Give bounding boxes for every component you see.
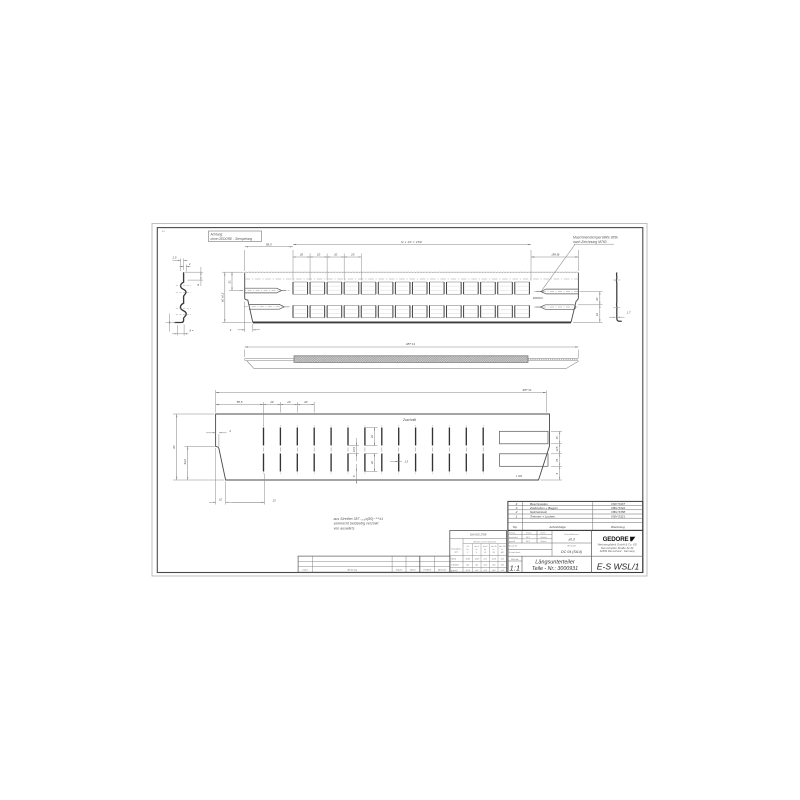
svg-text:±0,2: ±0,2 bbox=[475, 570, 478, 572]
svg-text:Werkzeug: Werkzeug bbox=[611, 525, 625, 529]
svg-text:58,5: 58,5 bbox=[237, 400, 243, 404]
svg-text:DIN ISO 2768: DIN ISO 2768 bbox=[470, 533, 487, 537]
svg-text:Name: Name bbox=[541, 533, 546, 535]
svg-text:Name: Name bbox=[410, 570, 417, 572]
svg-text:20: 20 bbox=[370, 435, 374, 439]
svg-text:43,6: 43,6 bbox=[183, 459, 187, 465]
svg-text:Datum: Datum bbox=[396, 569, 403, 572]
svg-text:2,5: 2,5 bbox=[172, 256, 177, 260]
svg-text:von auswärts: von auswärts bbox=[334, 526, 355, 530]
svg-text:Änderung: Änderung bbox=[346, 569, 357, 572]
svg-text:58,5: 58,5 bbox=[266, 242, 272, 246]
svg-text:1: 1 bbox=[516, 514, 518, 518]
svg-text:Zuschnitt: Zuschnitt bbox=[402, 418, 416, 422]
svg-text:Ersetzt durch:: Ersetzt durch: bbox=[509, 551, 521, 554]
svg-text:über 6: über 6 bbox=[483, 546, 488, 548]
svg-text:bis: bis bbox=[476, 549, 478, 551]
svg-text:20: 20 bbox=[350, 252, 355, 256]
svg-text:12,5: 12,5 bbox=[556, 446, 559, 451]
svg-text:über 30: über 30 bbox=[491, 546, 497, 548]
svg-text:grad: grad bbox=[455, 552, 458, 554]
svg-text:Prüffeld: Prüffeld bbox=[423, 570, 431, 572]
svg-text:30: 30 bbox=[484, 552, 486, 554]
svg-text:Trennen + Lochen: Trennen + Lochen bbox=[530, 514, 555, 518]
svg-text:20: 20 bbox=[269, 400, 274, 404]
svg-text:10,5: 10,5 bbox=[353, 446, 356, 451]
svg-text:1:1: 1:1 bbox=[510, 564, 521, 573]
svg-text:±0,8: ±0,8 bbox=[492, 570, 495, 572]
svg-text:60 ±0,5: 60 ±0,5 bbox=[220, 292, 224, 302]
svg-text:3000931: 3000931 bbox=[533, 296, 544, 300]
svg-text:±0,2: ±0,2 bbox=[501, 559, 504, 561]
svg-text:Index: Index bbox=[303, 570, 309, 572]
svg-text:±0,1: ±0,1 bbox=[475, 565, 478, 567]
svg-text:über 3: über 3 bbox=[474, 546, 479, 548]
svg-text:N x 20 = 280: N x 20 = 280 bbox=[401, 240, 422, 244]
svg-text:senkrecht beidseitig verzinkt: senkrecht beidseitig verzinkt bbox=[334, 522, 380, 526]
svg-text:31: 31 bbox=[228, 280, 232, 284]
svg-text:Arbeitsfolge: Arbeitsfolge bbox=[548, 525, 566, 529]
svg-text:42899 Remscheid · Germany: 42899 Remscheid · Germany bbox=[600, 550, 636, 553]
svg-text:±0,1: ±0,1 bbox=[466, 565, 469, 567]
svg-text:3: 3 bbox=[467, 552, 468, 554]
svg-text:20: 20 bbox=[303, 400, 308, 404]
svg-text:0,5: 0,5 bbox=[467, 546, 469, 548]
svg-text:m (mittel): m (mittel) bbox=[451, 564, 459, 567]
svg-text:1,7: 1,7 bbox=[627, 311, 631, 315]
svg-text:20: 20 bbox=[316, 252, 321, 256]
svg-text:Datum: Datum bbox=[526, 532, 532, 535]
svg-text:20: 20 bbox=[333, 252, 338, 256]
svg-text:Maßstab: Maßstab bbox=[511, 558, 518, 561]
svg-text:nach Zeichnung M760: nach Zeichnung M760 bbox=[573, 240, 607, 244]
svg-text:Abmaße in mm für Nennmaße: Abmaße in mm für Nennmaße bbox=[473, 540, 497, 543]
svg-text:±0,2: ±0,2 bbox=[484, 565, 487, 567]
svg-text:GEDORE: GEDORE bbox=[603, 536, 629, 543]
svg-text:1 464: 1 464 bbox=[516, 475, 523, 478]
svg-text:±0,05: ±0,05 bbox=[475, 559, 479, 561]
svg-text:g (grob): g (grob) bbox=[451, 570, 458, 572]
svg-text:±0,15: ±0,15 bbox=[492, 559, 496, 561]
svg-text:20: 20 bbox=[299, 252, 304, 256]
svg-text:(58,9): (58,9) bbox=[552, 252, 560, 256]
svg-text:25.2.: 25.2. bbox=[525, 541, 531, 543]
svg-text:Maschinenstempel BMS 365k: Maschinenstempel BMS 365k bbox=[573, 235, 618, 239]
svg-text:20: 20 bbox=[370, 461, 374, 465]
svg-text:Längsunterteiler: Längsunterteiler bbox=[535, 559, 576, 565]
svg-text:1,5: 1,5 bbox=[405, 460, 409, 464]
svg-text:Op.: Op. bbox=[513, 525, 518, 529]
svg-text:bis: bis bbox=[501, 549, 503, 551]
svg-text:120: 120 bbox=[492, 552, 495, 554]
svg-text:±0,3: ±0,3 bbox=[492, 565, 495, 567]
svg-text:aus Streifen 387₋₀,₅x(80)⁺⁰·⁵x: aus Streifen 387₋₀,₅x(80)⁺⁰·⁵x1 bbox=[334, 517, 384, 521]
svg-text:f (fein): f (fein) bbox=[451, 559, 456, 561]
svg-text:bearbeitet: bearbeitet bbox=[509, 536, 518, 539]
svg-text:80: 80 bbox=[172, 445, 176, 449]
svg-text:Ersatz für:: Ersatz für: bbox=[509, 545, 518, 548]
svg-text:ohne GEDORE - Stempelung: ohne GEDORE - Stempelung bbox=[211, 237, 253, 241]
svg-text:387 ±1: 387 ±1 bbox=[522, 388, 531, 392]
svg-text:VSH 5321: VSH 5321 bbox=[611, 514, 625, 518]
svg-text:bis: bis bbox=[493, 549, 495, 551]
svg-text:Gruber: Gruber bbox=[541, 541, 547, 543]
svg-text:6: 6 bbox=[476, 552, 477, 554]
svg-text:±0,5: ±0,5 bbox=[484, 570, 487, 572]
svg-text:20: 20 bbox=[595, 297, 599, 302]
svg-text:±0,05: ±0,05 bbox=[466, 559, 470, 561]
svg-text:±1,2: ±1,2 bbox=[501, 570, 504, 572]
svg-text:±0,3: ±0,3 bbox=[568, 538, 575, 542]
svg-text:DC 04 (St14): DC 04 (St14) bbox=[561, 550, 582, 554]
svg-text:Schultz: Schultz bbox=[541, 536, 547, 539]
svg-text:bis: bis bbox=[467, 549, 469, 551]
svg-text:Werkstoff: Werkstoff bbox=[567, 544, 576, 547]
svg-text:387 ±1: 387 ±1 bbox=[406, 342, 415, 346]
svg-text:±0,1: ±0,1 bbox=[484, 559, 487, 561]
svg-text:16: 16 bbox=[595, 313, 599, 317]
svg-text:2: 2 bbox=[188, 262, 191, 266]
svg-text:20: 20 bbox=[286, 400, 291, 404]
svg-text:Freimaßtoleranz: Freimaßtoleranz bbox=[564, 533, 579, 536]
svg-text:Teile - Nr.: 3000931: Teile - Nr.: 3000931 bbox=[532, 566, 578, 572]
svg-text:Abmaße: Abmaße bbox=[437, 569, 447, 572]
svg-text:±0,5: ±0,5 bbox=[501, 565, 504, 567]
svg-text:geprüft: geprüft bbox=[509, 540, 515, 543]
svg-text:Zchngs.: Zchngs. bbox=[508, 533, 516, 535]
svg-text:Achtung:: Achtung: bbox=[210, 232, 224, 236]
svg-text:25.2.: 25.2. bbox=[525, 537, 531, 539]
svg-text:±0,15: ±0,15 bbox=[466, 570, 470, 572]
svg-text:8 =: 8 = bbox=[190, 328, 194, 332]
svg-text:Genauigkeits-: Genauigkeits- bbox=[451, 548, 462, 551]
svg-text:bis: bis bbox=[484, 549, 486, 551]
svg-text:E-S WSL/1: E-S WSL/1 bbox=[597, 561, 640, 571]
svg-text:über 120: über 120 bbox=[499, 546, 505, 548]
svg-text:13: 13 bbox=[272, 499, 276, 503]
